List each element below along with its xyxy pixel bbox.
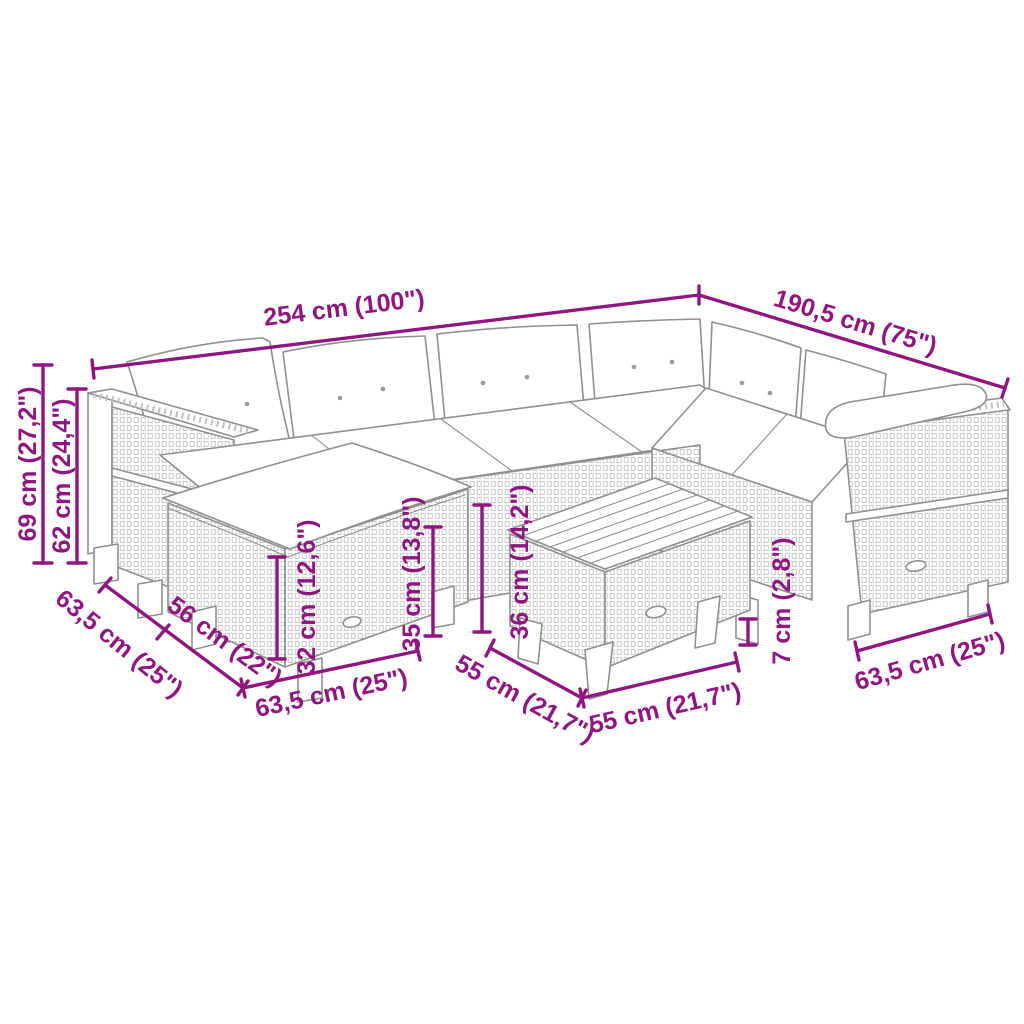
dim-table-height-label: 36 cm (14,2") bbox=[506, 485, 534, 640]
leg bbox=[94, 544, 118, 584]
dim-seat-height-label: 35 cm (13,8") bbox=[398, 497, 426, 652]
dim-ottoman-height-label: 32 cm (12,6") bbox=[293, 520, 321, 675]
dim-leg-height-label: 7 cm (2,8") bbox=[768, 537, 796, 664]
armrest-post bbox=[88, 389, 112, 554]
product-dimension-diagram: 254 cm (100") 190,5 cm (75") 69 cm (27,2… bbox=[0, 0, 1024, 1024]
leg bbox=[968, 580, 988, 617]
leg bbox=[432, 586, 454, 628]
dim-back-height-label: 62 cm (24,4") bbox=[48, 399, 76, 554]
dim-total-height-label: 69 cm (27,2") bbox=[14, 387, 42, 542]
leg bbox=[848, 600, 870, 640]
